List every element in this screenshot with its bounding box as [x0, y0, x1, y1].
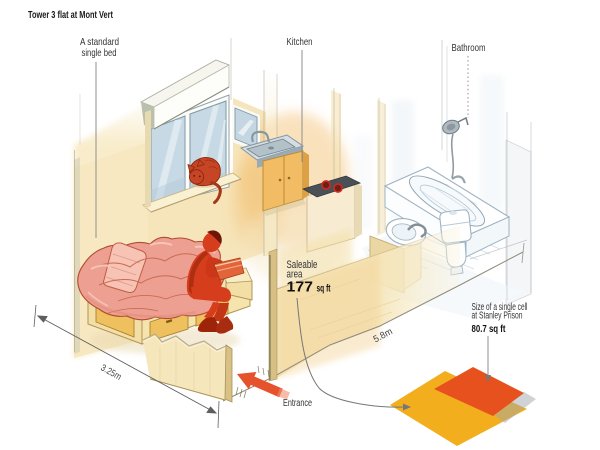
svg-text:Bathroom: Bathroom [452, 42, 486, 54]
svg-text:3.25m: 3.25m [99, 363, 124, 383]
svg-text:single bed: single bed [82, 47, 117, 59]
svg-text:177: 177 [287, 280, 314, 296]
svg-text:sq ft: sq ft [317, 283, 331, 295]
svg-text:Entrance: Entrance [283, 398, 312, 409]
svg-text:Kitchen: Kitchen [287, 36, 313, 48]
svg-text:80.7 sq ft: 80.7 sq ft [472, 324, 507, 335]
svg-text:at Stanley Prison: at Stanley Prison [472, 311, 523, 322]
svg-text:Tower 3 flat at Mont Vert: Tower 3 flat at Mont Vert [28, 9, 113, 21]
